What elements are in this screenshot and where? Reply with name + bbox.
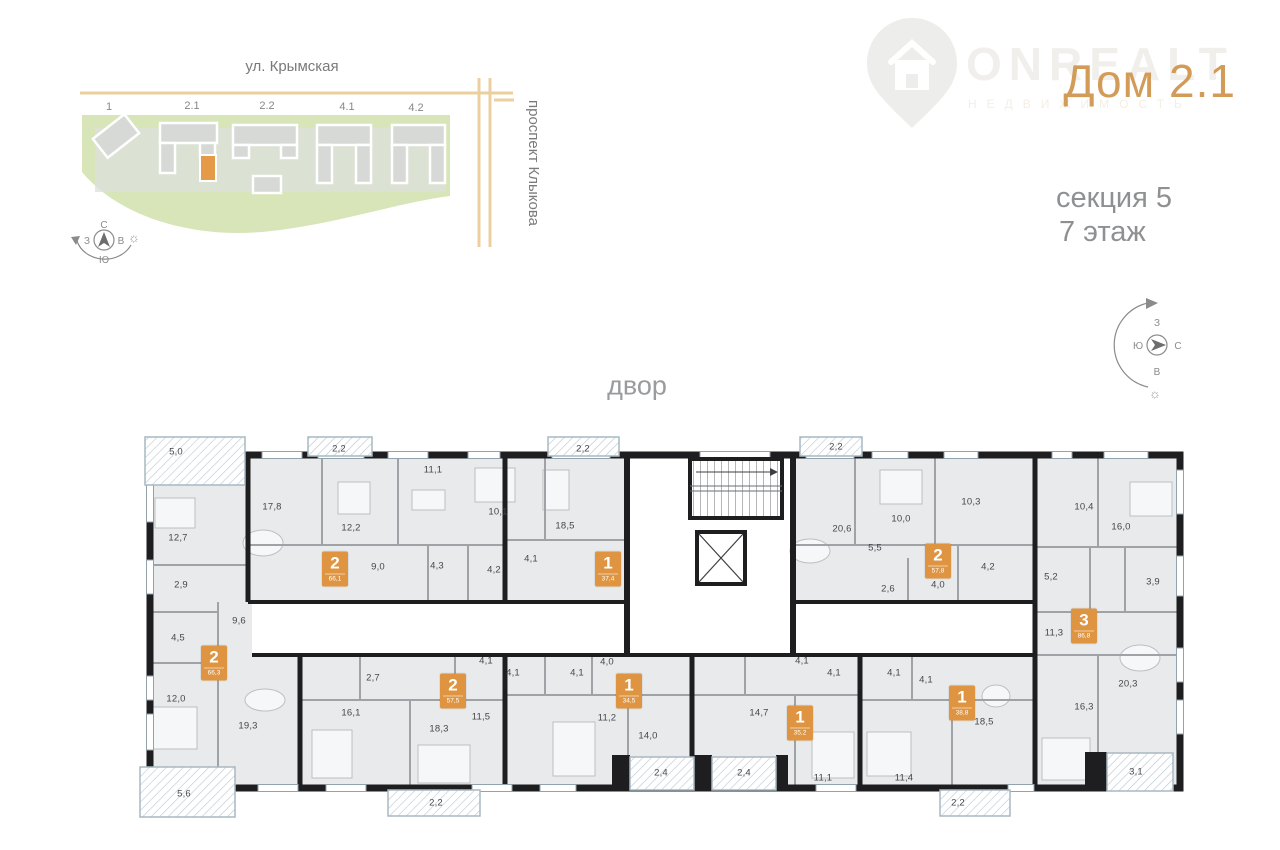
apartment-total-area: 34,5 xyxy=(619,696,639,706)
room-area-label: 5,5 xyxy=(868,543,882,554)
site-building-label: 4.2 xyxy=(408,102,423,114)
room-area-label: 16,1 xyxy=(341,708,360,719)
room-area-label: 4,1 xyxy=(570,668,584,679)
yard-label: двор xyxy=(607,371,667,402)
room-area-label: 4,1 xyxy=(524,554,538,565)
room-area-label: 16,3 xyxy=(1074,702,1093,713)
room-area-label: 2,7 xyxy=(366,673,380,684)
room-area-label: 2,6 xyxy=(881,584,895,595)
elevator xyxy=(697,532,745,584)
apartment-badge[interactable]: 266,1 xyxy=(322,552,348,587)
apartment-rooms-count: 1 xyxy=(949,688,975,707)
site-building-label: 2.1 xyxy=(184,100,199,112)
site-building-label: 2.2 xyxy=(259,100,274,112)
room-area-label: 4,0 xyxy=(931,580,945,591)
room-area-label: 10,1 xyxy=(488,507,507,518)
apartment-rooms-count: 2 xyxy=(925,546,951,565)
site-building-label: 4.1 xyxy=(339,101,354,113)
sun-icon: ☼ xyxy=(128,230,140,245)
room-area-label: 14,0 xyxy=(638,731,657,742)
room-area-label: 4,5 xyxy=(171,633,185,644)
room-area-label: 16,0 xyxy=(1111,522,1130,533)
apartment-total-area: 66,3 xyxy=(204,668,224,678)
site-building-label: 1 xyxy=(106,101,112,113)
room-area-label: 18,5 xyxy=(974,717,993,728)
apartment-rooms-count: 2 xyxy=(322,554,348,573)
room-area-label: 4,0 xyxy=(600,657,614,668)
apartment-total-area: 66,1 xyxy=(325,574,345,584)
room-area-label: 4,2 xyxy=(981,562,995,573)
site-plan: ул. Крымская проспект Клыкова xyxy=(71,58,542,266)
compass-w-label: З xyxy=(84,236,90,247)
room-area-label: 5,0 xyxy=(169,447,183,458)
room-area-label: 20,3 xyxy=(1118,679,1137,690)
page-graphics: ONREALT НЕДВИЖИМОСТЬ ул. Крымская проспе… xyxy=(0,0,1280,850)
room-area-label: 2,2 xyxy=(951,798,965,809)
room-area-label: 4,1 xyxy=(479,656,493,667)
apartment-badge[interactable]: 386,8 xyxy=(1071,609,1097,644)
room-area-label: 12,0 xyxy=(166,694,185,705)
apartment-rooms-count: 2 xyxy=(201,648,227,667)
room-area-label: 4,1 xyxy=(795,656,809,667)
room-area-label: 14,7 xyxy=(749,708,768,719)
room-area-label: 2,4 xyxy=(654,768,668,779)
apartment-rooms-count: 1 xyxy=(595,554,621,573)
room-area-label: 11,1 xyxy=(424,465,443,476)
apartment-badge[interactable]: 138,8 xyxy=(949,686,975,721)
apartment-badge[interactable]: 135,2 xyxy=(787,706,813,741)
room-area-label: 3,9 xyxy=(1146,577,1160,588)
compass2-left-label: Ю xyxy=(1133,341,1143,352)
room-area-label: 2,4 xyxy=(737,768,751,779)
room-area-label: 9,6 xyxy=(232,616,246,627)
apartment-total-area: 86,8 xyxy=(1074,631,1094,641)
apartment-badge[interactable]: 137,4 xyxy=(595,552,621,587)
room-area-label: 12,7 xyxy=(168,533,187,544)
room-area-label: 10,3 xyxy=(961,497,980,508)
room-area-label: 11,4 xyxy=(895,773,914,784)
compass2-top-label: З xyxy=(1154,318,1160,329)
room-area-label: 20,6 xyxy=(832,524,851,535)
room-area-label: 4,1 xyxy=(827,668,841,679)
room-area-label: 10,4 xyxy=(1074,502,1093,513)
apartment-badge[interactable]: 257,5 xyxy=(440,674,466,709)
room-area-label: 2,2 xyxy=(576,444,590,455)
apartment-rooms-count: 2 xyxy=(440,676,466,695)
room-area-label: 4,1 xyxy=(506,668,520,679)
room-area-label: 11,2 xyxy=(598,713,617,724)
street-right-label: проспект Клыкова xyxy=(525,100,542,227)
sun-icon-2: ☼ xyxy=(1149,386,1161,401)
room-area-label: 17,8 xyxy=(262,502,281,513)
street-top-label: ул. Крымская xyxy=(245,58,338,75)
section-label: секция 5 xyxy=(1056,182,1172,215)
floor-label: 7 этаж xyxy=(1059,216,1146,249)
apartment-total-area: 57,8 xyxy=(928,566,948,576)
compass2-bottom-label: В xyxy=(1154,367,1161,378)
room-area-label: 19,3 xyxy=(238,721,257,732)
compass-n-label: С xyxy=(100,220,107,231)
apartment-total-area: 35,2 xyxy=(790,728,810,738)
apartment-rooms-count: 1 xyxy=(616,676,642,695)
room-area-label: 12,2 xyxy=(341,523,360,534)
apartment-total-area: 57,5 xyxy=(443,696,463,706)
compass-e-label: В xyxy=(118,236,125,247)
room-area-label: 4,2 xyxy=(487,565,501,576)
room-area-label: 11,3 xyxy=(1045,628,1064,639)
apartment-total-area: 38,8 xyxy=(952,708,972,718)
room-area-label: 10,0 xyxy=(891,514,910,525)
room-area-label: 18,3 xyxy=(429,724,448,735)
room-area-label: 2,9 xyxy=(174,580,188,591)
room-area-label: 2,2 xyxy=(332,444,346,455)
room-area-label: 9,0 xyxy=(371,562,385,573)
room-area-label: 11,1 xyxy=(814,773,833,784)
room-area-label: 3,1 xyxy=(1129,767,1143,778)
room-area-label: 5,2 xyxy=(1044,572,1058,583)
compass2-right-label: С xyxy=(1174,341,1181,352)
apartment-badge[interactable]: 134,5 xyxy=(616,674,642,709)
room-area-label: 2,2 xyxy=(429,798,443,809)
apartment-badge[interactable]: 266,3 xyxy=(201,646,227,681)
stairwell xyxy=(690,459,782,518)
room-area-label: 18,5 xyxy=(555,521,574,532)
room-area-label: 11,5 xyxy=(472,712,491,723)
compass-s-label: Ю xyxy=(99,255,109,266)
page-title: Дом 2.1 xyxy=(1063,54,1236,108)
apartment-total-area: 37,4 xyxy=(598,574,618,584)
room-area-label: 4,3 xyxy=(430,561,444,572)
apartment-rooms-count: 3 xyxy=(1071,611,1097,630)
apartment-badge[interactable]: 257,8 xyxy=(925,544,951,579)
room-area-label: 4,1 xyxy=(887,668,901,679)
floor-plan xyxy=(140,437,1184,817)
apartment-rooms-count: 1 xyxy=(787,708,813,727)
room-area-label: 2,2 xyxy=(829,442,843,453)
room-area-label: 5,6 xyxy=(177,789,191,800)
site-highlighted-section[interactable] xyxy=(200,155,216,181)
room-area-label: 4,1 xyxy=(919,675,933,686)
